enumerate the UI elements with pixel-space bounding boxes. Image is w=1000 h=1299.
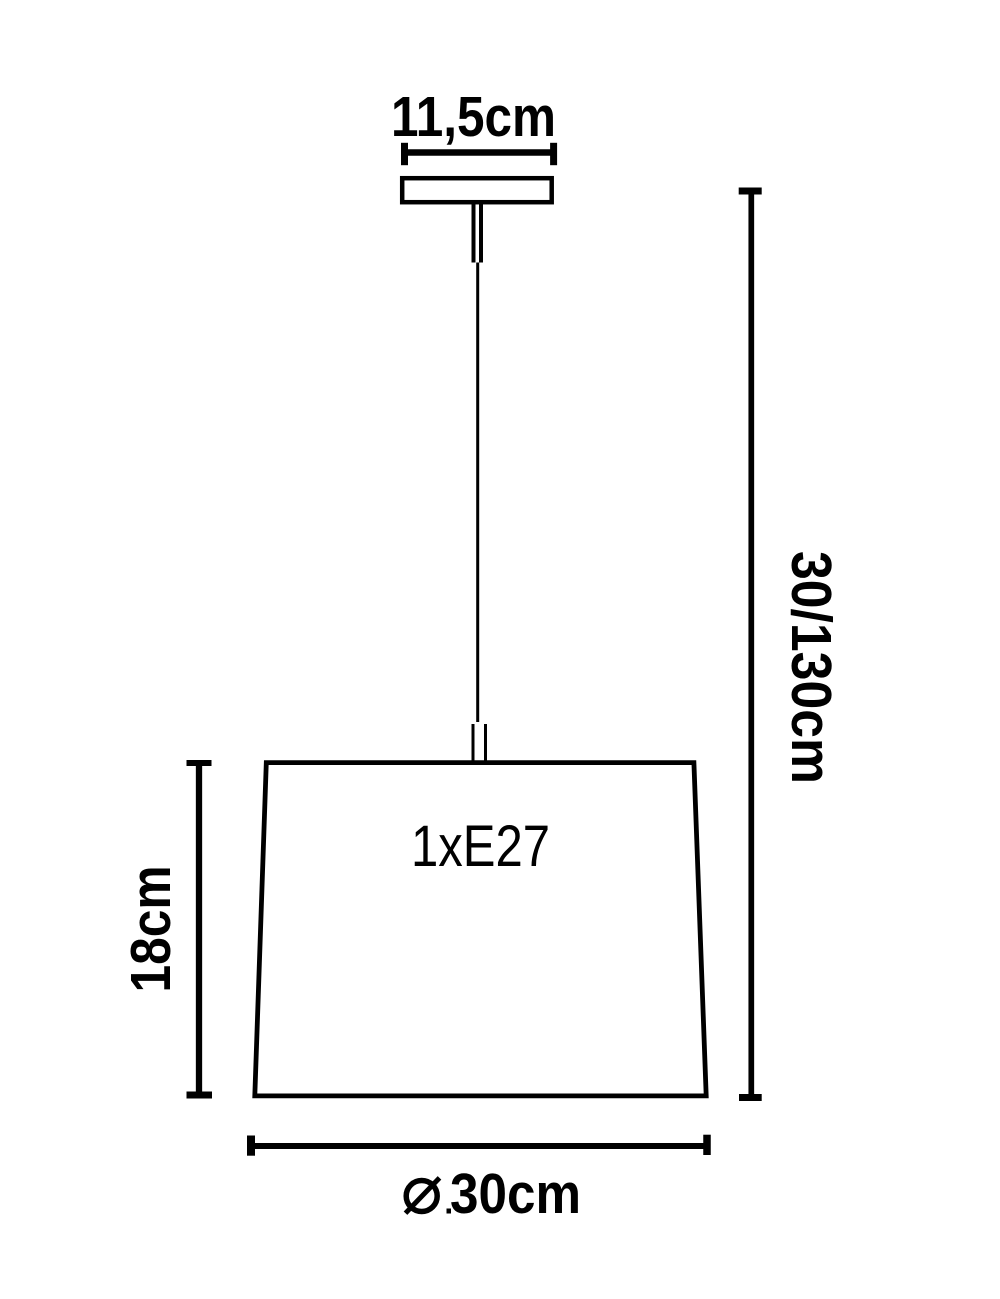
svg-text:30cm: 30cm xyxy=(450,1162,581,1225)
svg-text:30/130cm: 30/130cm xyxy=(780,551,843,784)
svg-text:18cm: 18cm xyxy=(119,866,182,993)
svg-text:1xE27: 1xE27 xyxy=(411,814,550,879)
svg-text:11,5cm: 11,5cm xyxy=(391,85,556,148)
